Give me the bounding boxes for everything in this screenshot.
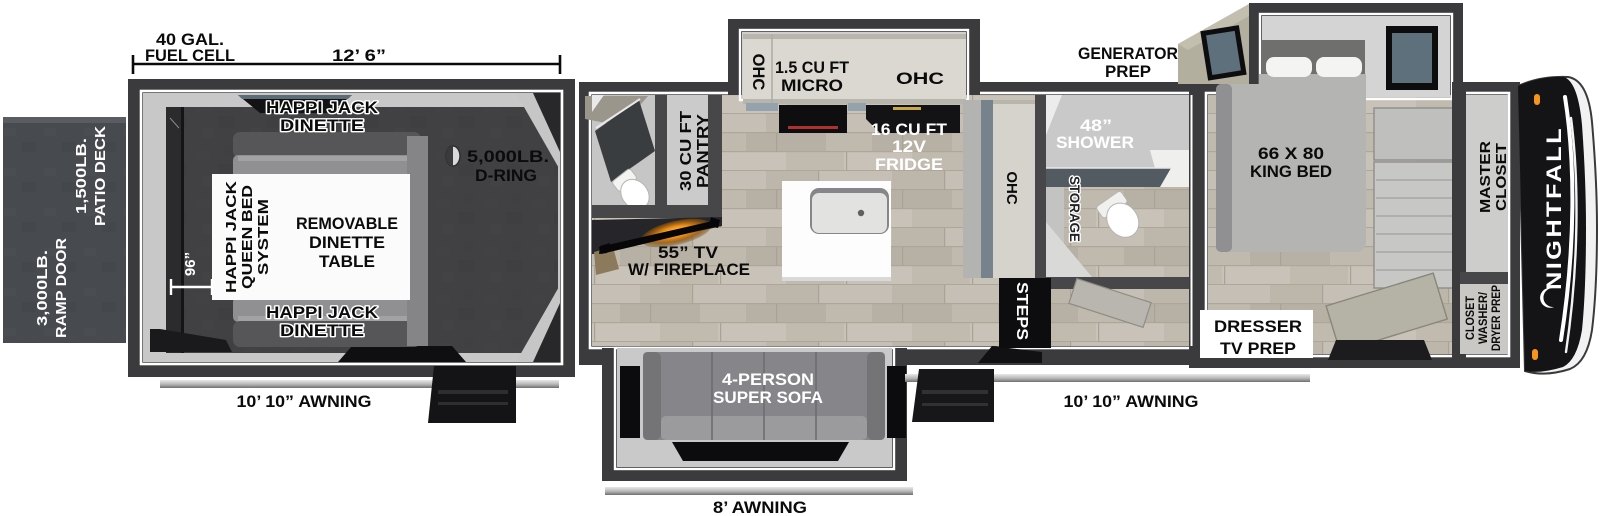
- svg-text:SHOWER: SHOWER: [1056, 133, 1134, 152]
- svg-text:1.5 CU FT: 1.5 CU FT: [775, 58, 850, 77]
- svg-text:TABLE: TABLE: [319, 252, 375, 271]
- svg-text:KING BED: KING BED: [1250, 162, 1332, 181]
- svg-text:DINETTE: DINETTE: [280, 117, 364, 135]
- svg-text:QUEEN BED: QUEEN BED: [240, 185, 256, 289]
- svg-text:CLOSET: CLOSET: [1493, 143, 1510, 211]
- svg-text:SYSTEM: SYSTEM: [256, 199, 272, 275]
- svg-text:W/ FIREPLACE: W/ FIREPLACE: [628, 260, 750, 279]
- svg-text:PREP: PREP: [1105, 62, 1151, 81]
- svg-text:HAPPI JACK: HAPPI JACK: [266, 304, 378, 322]
- svg-text:OHC: OHC: [1003, 171, 1020, 205]
- svg-text:DINETTE: DINETTE: [280, 322, 364, 340]
- svg-text:12V: 12V: [892, 138, 926, 156]
- svg-text:SUPER SOFA: SUPER SOFA: [713, 389, 823, 407]
- svg-text:DRESSER: DRESSER: [1214, 317, 1302, 336]
- svg-text:10’ 10” AWNING: 10’ 10” AWNING: [1064, 392, 1199, 411]
- svg-text:12’ 6”: 12’ 6”: [332, 46, 386, 65]
- svg-text:16 CU FT: 16 CU FT: [871, 121, 947, 139]
- svg-text:STORAGE: STORAGE: [1067, 176, 1083, 242]
- svg-text:HAPPI JACK: HAPPI JACK: [266, 99, 378, 117]
- svg-text:OHC: OHC: [749, 54, 767, 91]
- svg-text:RAMP DOOR: RAMP DOOR: [53, 238, 70, 338]
- svg-text:D-RING: D-RING: [475, 166, 537, 185]
- svg-text:TV PREP: TV PREP: [1220, 339, 1296, 358]
- svg-text:5,000LB.: 5,000LB.: [467, 147, 549, 166]
- svg-text:4-PERSON: 4-PERSON: [722, 371, 814, 389]
- svg-text:HAPPI JACK: HAPPI JACK: [224, 180, 240, 293]
- svg-text:CLOSET: CLOSET: [1465, 296, 1477, 340]
- svg-text:30 CU FT: 30 CU FT: [678, 111, 695, 191]
- svg-text:WASHER/: WASHER/: [1478, 291, 1490, 344]
- svg-text:DINETTE: DINETTE: [309, 233, 385, 252]
- svg-text:8’ AWNING: 8’ AWNING: [713, 498, 807, 516]
- svg-text:FUEL CELL: FUEL CELL: [145, 46, 235, 65]
- svg-text:GENERATOR: GENERATOR: [1078, 44, 1178, 63]
- svg-text:10’ 10” AWNING: 10’ 10” AWNING: [237, 392, 372, 411]
- svg-text:STEPS: STEPS: [1013, 282, 1030, 340]
- svg-text:3,000LB.: 3,000LB.: [34, 250, 51, 326]
- svg-text:96”: 96”: [182, 252, 199, 276]
- svg-text:MICRO: MICRO: [781, 76, 843, 95]
- svg-text:MASTER: MASTER: [1477, 141, 1494, 213]
- svg-text:NIGHTFALL: NIGHTFALL: [1543, 126, 1566, 290]
- svg-text:FRIDGE: FRIDGE: [875, 156, 943, 174]
- svg-text:REMOVABLE: REMOVABLE: [296, 214, 398, 233]
- svg-text:DRYER PREP: DRYER PREP: [1491, 285, 1503, 351]
- svg-text:66 X 80: 66 X 80: [1258, 144, 1324, 163]
- svg-text:1,500LB.: 1,500LB.: [73, 138, 90, 214]
- svg-text:OHC: OHC: [896, 69, 944, 88]
- svg-text:PATIO DECK: PATIO DECK: [92, 126, 109, 226]
